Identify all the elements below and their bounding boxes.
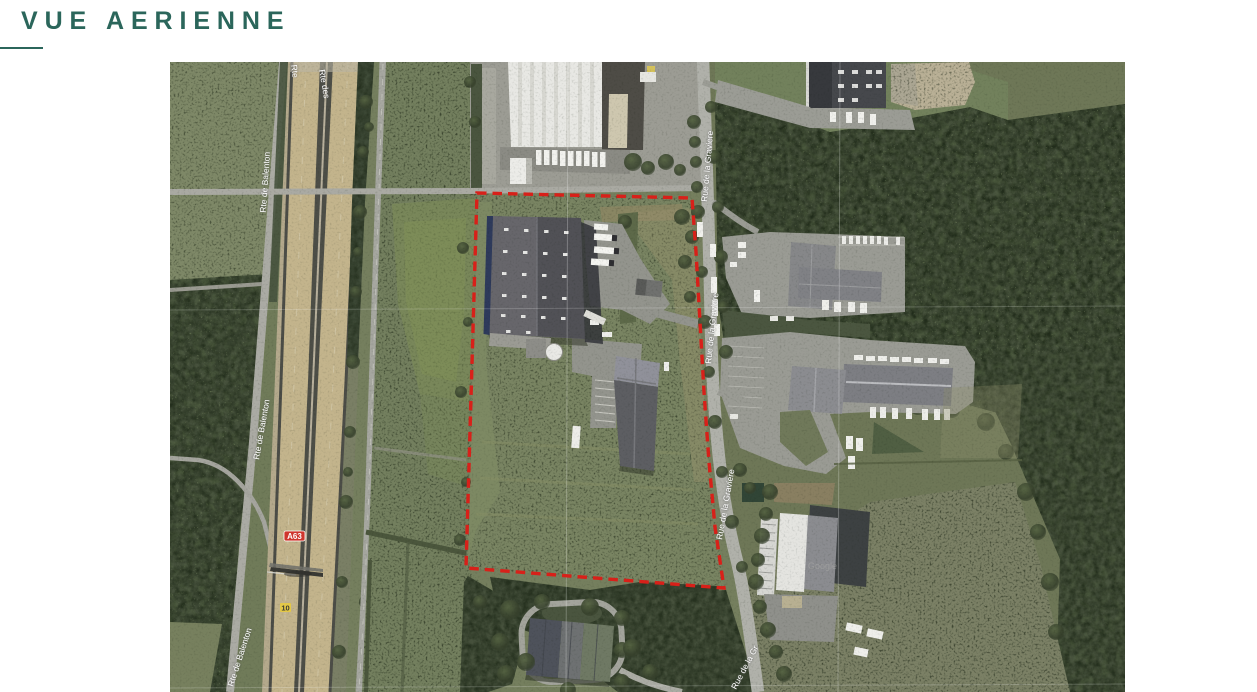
svg-text:A63: A63 — [287, 532, 302, 541]
svg-text:10: 10 — [281, 604, 289, 613]
svg-text:Rte: Rte — [289, 64, 301, 79]
